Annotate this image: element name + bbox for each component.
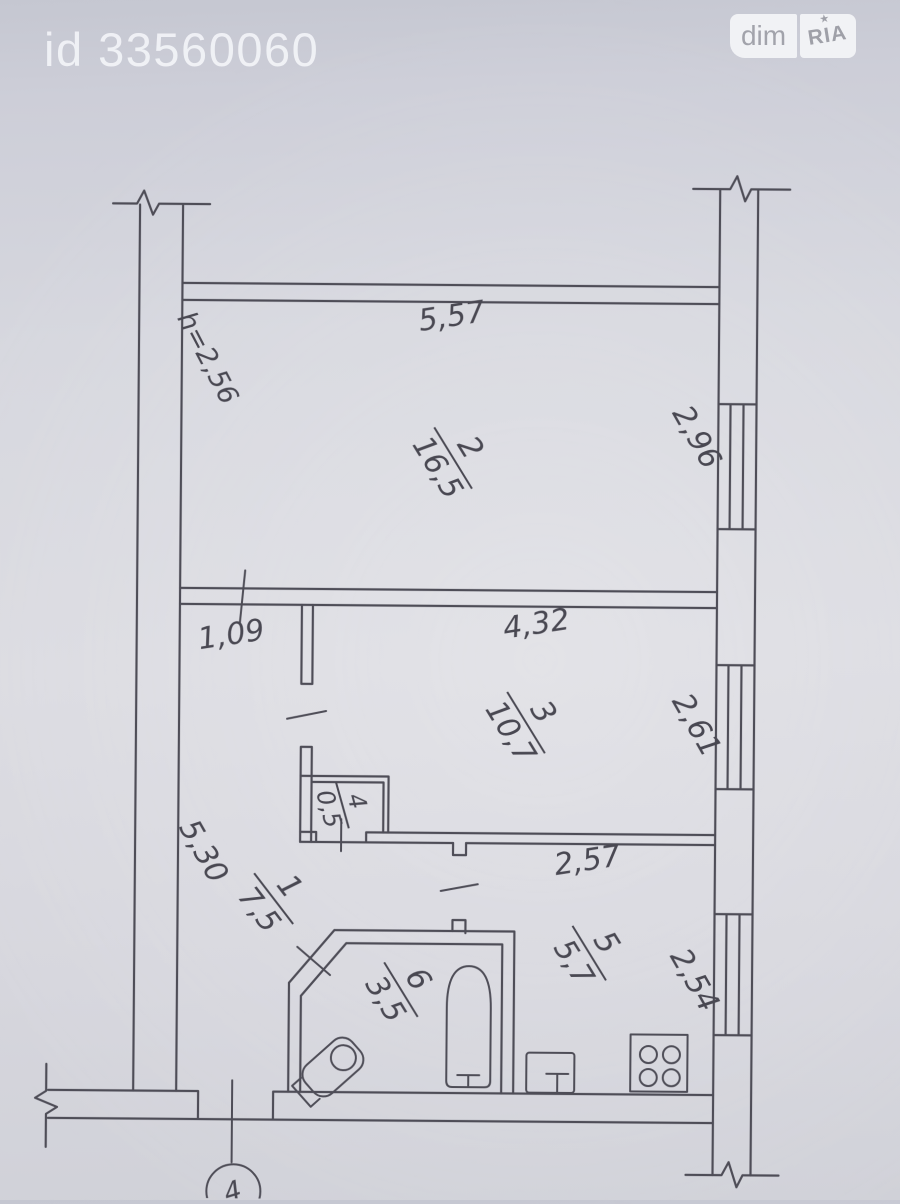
right-wall-break-bottom <box>685 1162 778 1188</box>
svg-text:3: 3 <box>523 694 564 730</box>
bathtub-drain-icon <box>457 1075 479 1087</box>
floorplan-photo: id 33560060 dim ★ RIA <box>0 0 900 1200</box>
dim-hall-offset: 1,09 <box>196 613 267 658</box>
bottom-wall <box>48 1090 713 1123</box>
window-kitchen <box>714 914 753 1035</box>
left-wall-break <box>113 190 210 215</box>
fixtures <box>288 965 688 1113</box>
svg-text:4: 4 <box>341 790 372 812</box>
axis-marker: 4 <box>206 1164 260 1203</box>
hall-kitchen-top-wall <box>300 832 715 845</box>
bottom-wall-break <box>35 1064 58 1147</box>
svg-text:5: 5 <box>586 925 627 961</box>
sink-symbol <box>526 1053 574 1093</box>
room-label-3: 3 10,7 <box>477 672 578 772</box>
dim-hall-depth: 5,30 <box>172 814 235 889</box>
svg-text:0,5: 0,5 <box>310 787 347 831</box>
right-wall <box>712 190 758 1175</box>
room3-door-tick <box>287 711 326 719</box>
right-wall-break-top <box>693 176 790 202</box>
svg-text:2: 2 <box>450 430 491 466</box>
dim-kitchen-width: 2,57 <box>552 838 623 883</box>
hall-room3-wall <box>300 605 313 842</box>
room-label-6: 6 3,5 <box>354 942 451 1035</box>
entrance-door-tick <box>232 1080 233 1162</box>
room-label-2: 2 16,5 <box>404 407 505 507</box>
room2-room3-wall <box>180 588 717 608</box>
room-label-5: 5 5,7 <box>542 906 639 999</box>
bathtub-symbol <box>446 966 491 1087</box>
floor-plan: 5,57 2,96 1,09 4,32 2,61 5,30 2,57 2,54 … <box>0 0 900 1204</box>
kitchen-door-tick <box>441 884 478 891</box>
windows <box>714 404 757 1035</box>
room-label-1: 1 7,5 <box>226 850 324 946</box>
window-room3 <box>716 665 755 789</box>
dim-room3-width: 4,32 <box>501 602 572 647</box>
bathroom-door-tick <box>297 947 330 975</box>
stove-symbol <box>630 1034 687 1091</box>
window-room2 <box>718 404 757 529</box>
dim-room3-depth: 2,61 <box>665 688 728 763</box>
axis-marker-label: 4 <box>220 1175 246 1204</box>
dim-kitchen-depth: 2,54 <box>663 942 726 1017</box>
left-wall <box>133 205 183 1091</box>
room-label-4: 4 0,5 <box>309 774 377 836</box>
svg-text:6: 6 <box>397 961 438 997</box>
